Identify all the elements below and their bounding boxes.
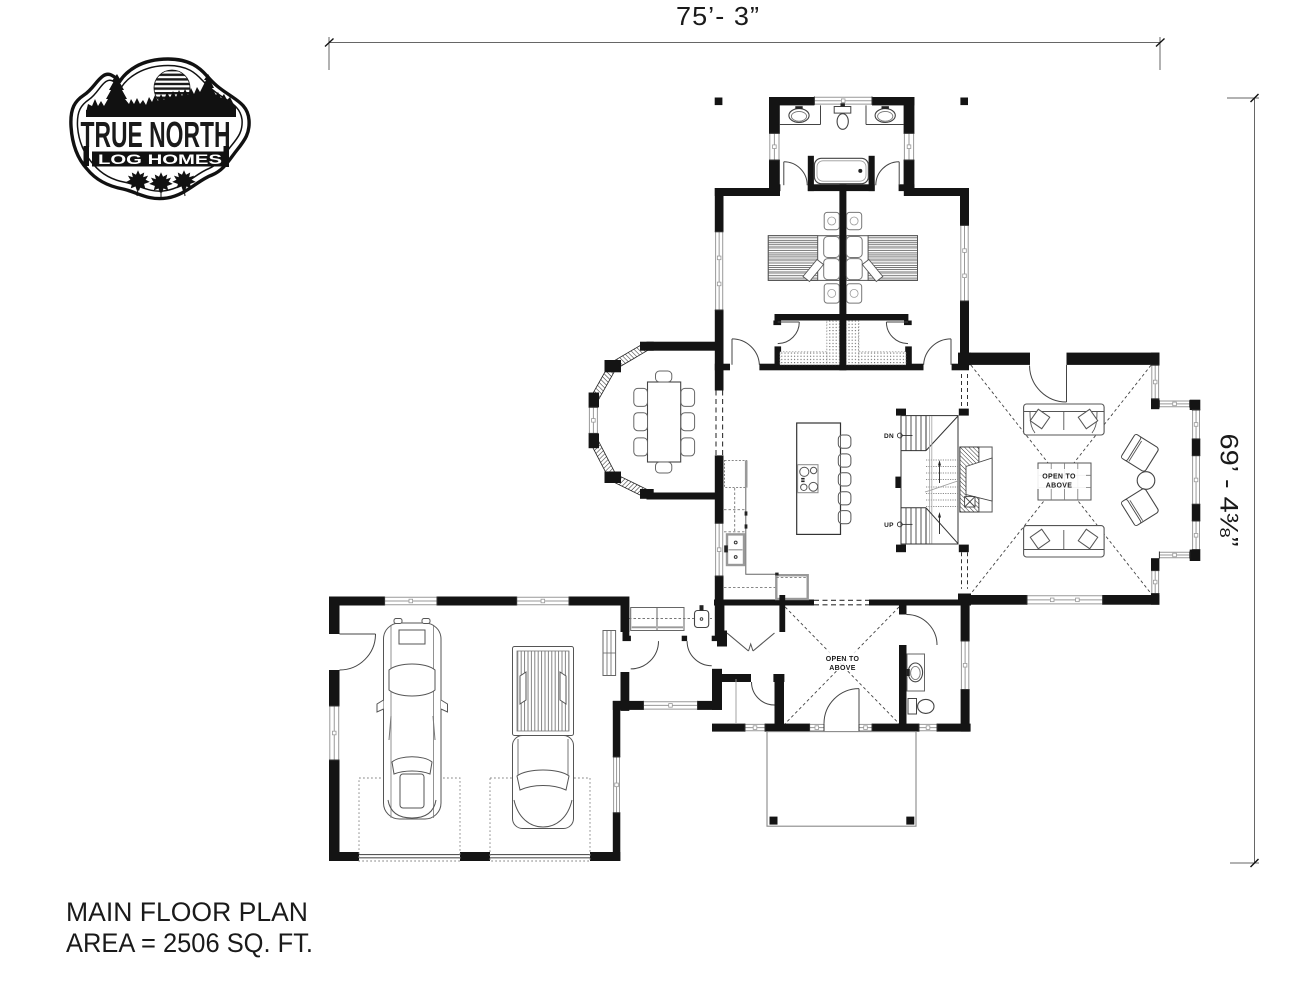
svg-text:MAIN FLOOR PLAN: MAIN FLOOR PLAN xyxy=(66,897,308,927)
svg-text:69’ - 4⅜”: 69’ - 4⅜” xyxy=(1215,434,1243,547)
svg-text:AREA = 2506 SQ. FT.: AREA = 2506 SQ. FT. xyxy=(66,928,313,958)
svg-text:ABOVE: ABOVE xyxy=(829,665,855,672)
svg-text:LOG HOMES: LOG HOMES xyxy=(98,151,222,167)
svg-text:ABOVE: ABOVE xyxy=(1046,483,1072,490)
svg-text:OPEN TO: OPEN TO xyxy=(1042,474,1076,481)
svg-text:TRUE NORTH: TRUE NORTH xyxy=(81,114,231,155)
svg-text:DN: DN xyxy=(884,433,894,440)
svg-text:OPEN TO: OPEN TO xyxy=(826,656,860,663)
svg-text:UP: UP xyxy=(884,522,894,529)
svg-text:75’- 3”: 75’- 3” xyxy=(676,1,760,31)
